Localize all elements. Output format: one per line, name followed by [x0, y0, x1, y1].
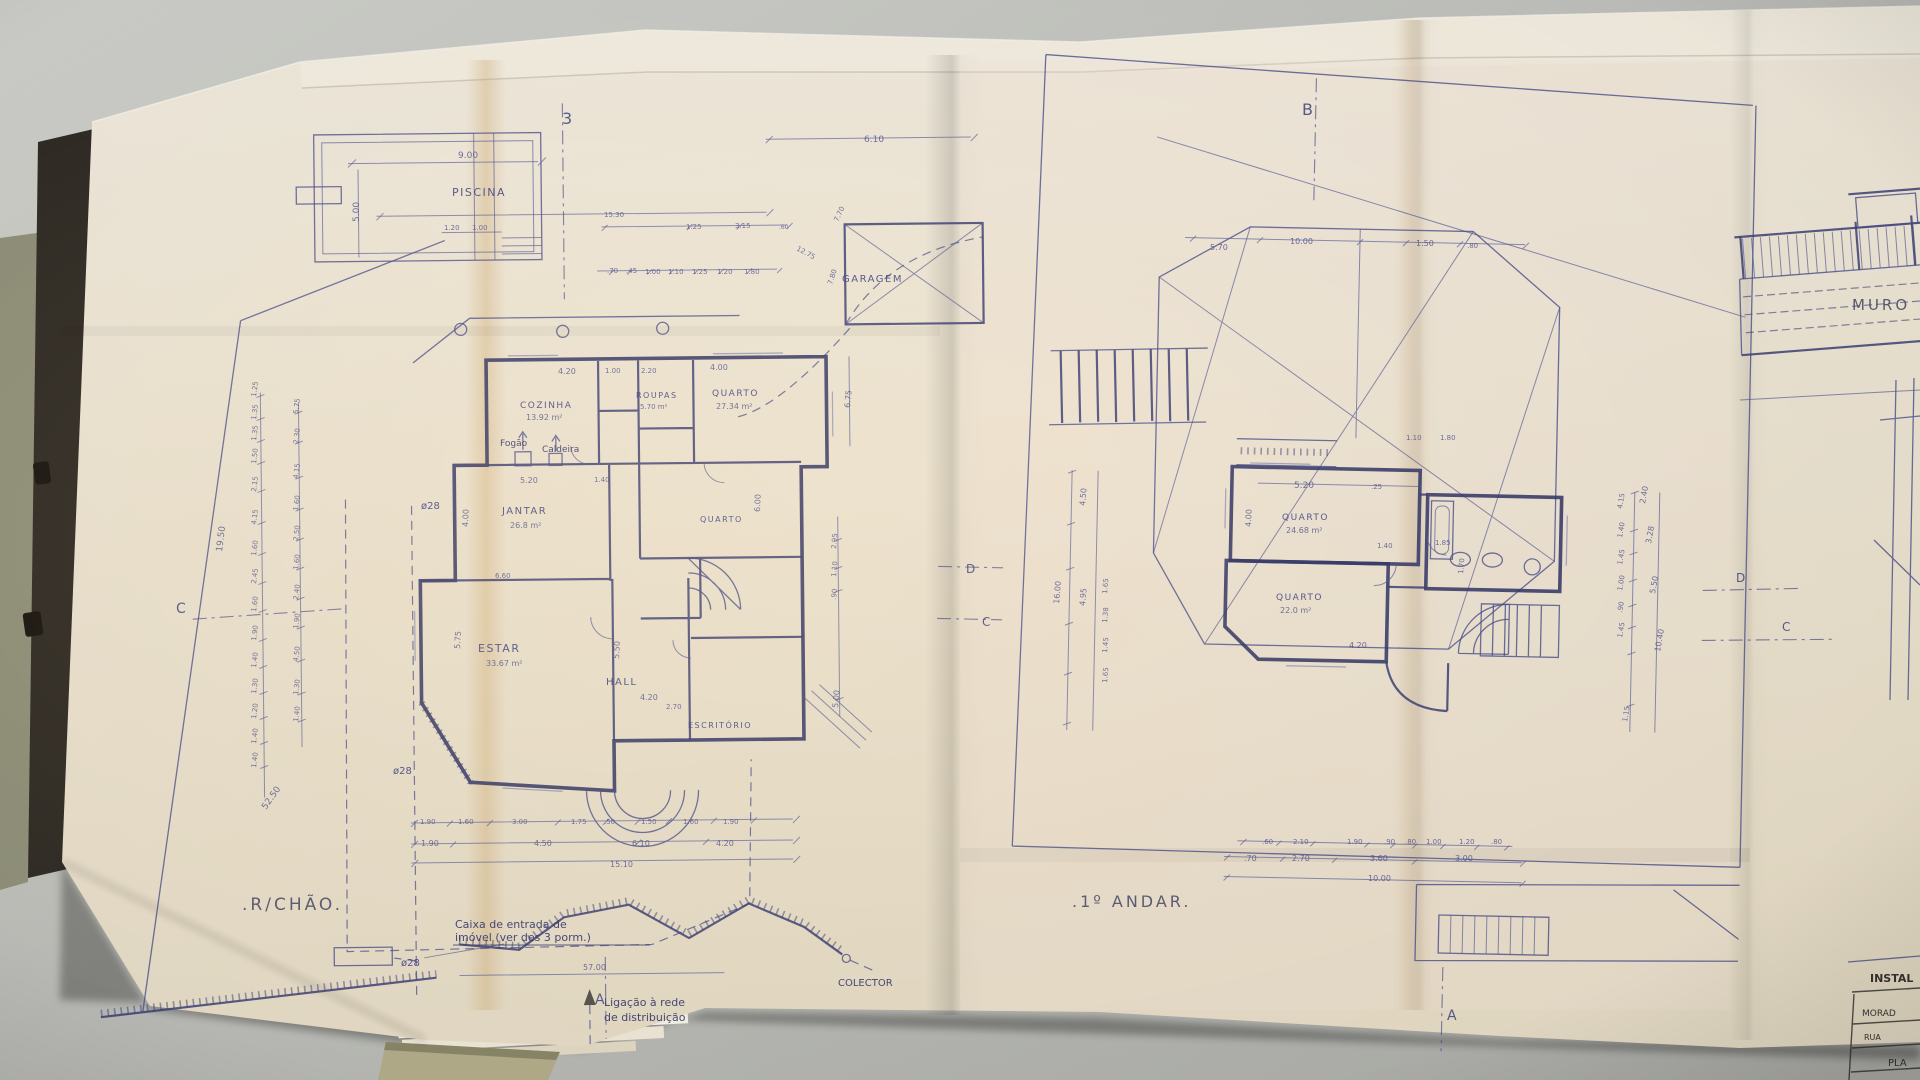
photo-of-architectural-drawing: PISCINA GARAGEM COZINHA 13.92 m² Fogão C…	[0, 0, 1920, 1080]
blueprint-scene: PISCINA GARAGEM COZINHA 13.92 m² Fogão C…	[0, 0, 1920, 1080]
vignette-overlay	[0, 0, 1920, 1080]
